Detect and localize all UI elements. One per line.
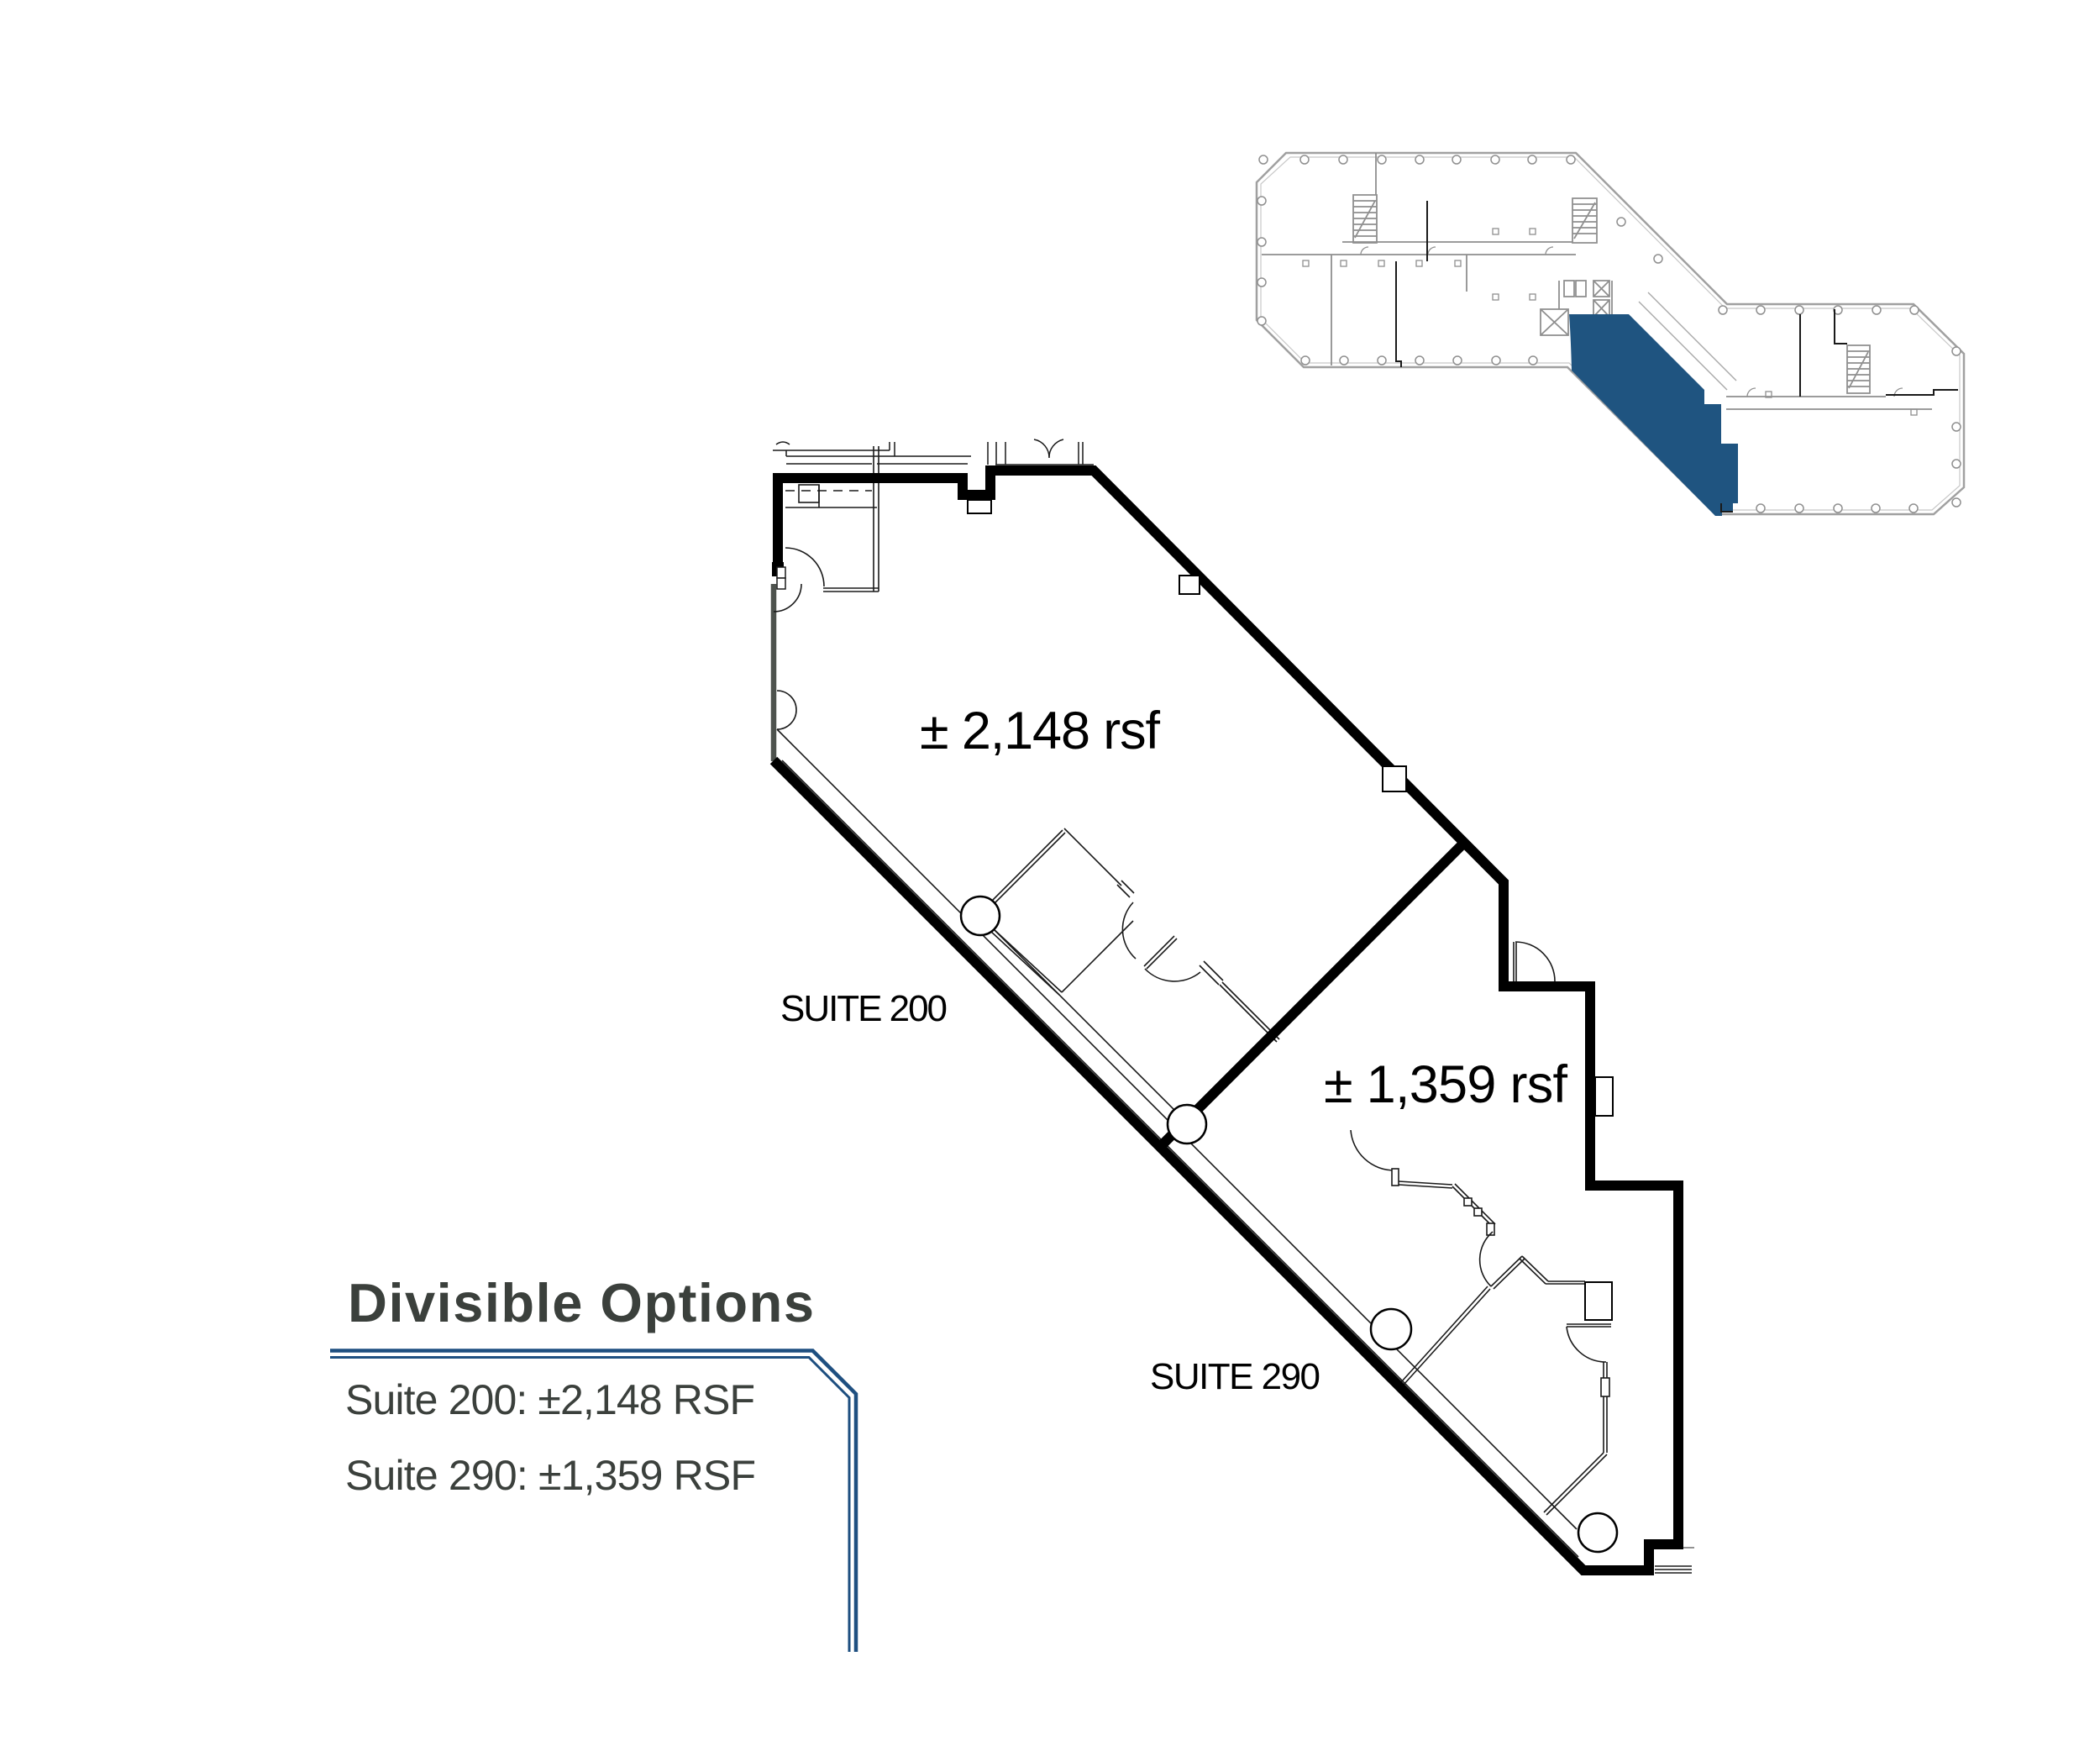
svg-text:SUITE 200: SUITE 200: [780, 988, 948, 1029]
svg-text:± 2,148 rsf: ± 2,148 rsf: [920, 702, 1160, 760]
svg-text:Suite 200: ±2,148 RSF: Suite 200: ±2,148 RSF: [345, 1376, 755, 1423]
svg-text:Divisible Options: Divisible Options: [348, 1272, 814, 1333]
svg-text:± 1,359 rsf: ± 1,359 rsf: [1324, 1055, 1567, 1114]
svg-text:SUITE 290: SUITE 290: [1150, 1356, 1320, 1397]
svg-text:Suite 290: ±1,359 RSF: Suite 290: ±1,359 RSF: [345, 1452, 756, 1499]
